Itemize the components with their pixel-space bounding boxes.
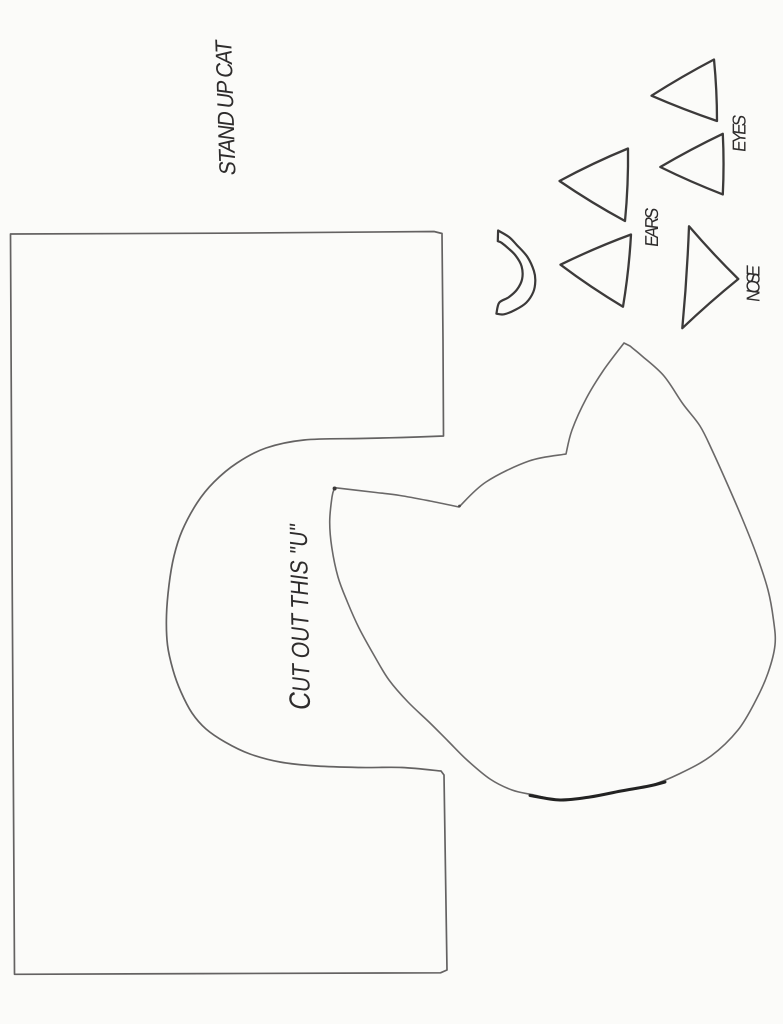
- svg-text:EARS: EARS: [641, 206, 662, 248]
- svg-text:EYES: EYES: [729, 113, 750, 153]
- svg-text:STAND UP CAT: STAND UP CAT: [210, 38, 240, 177]
- svg-text:NOSE: NOSE: [743, 264, 764, 303]
